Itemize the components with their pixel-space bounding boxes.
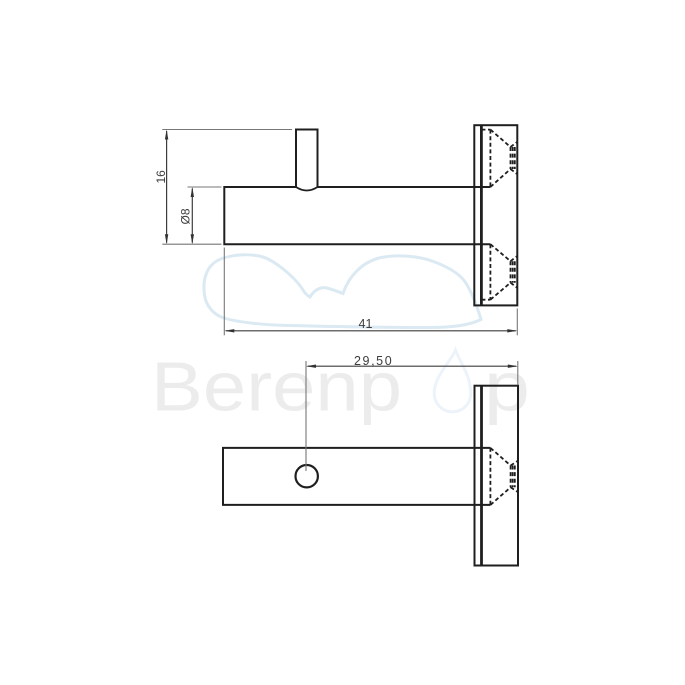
svg-text:41: 41 <box>359 317 373 331</box>
svg-text:29,50: 29,50 <box>354 354 393 368</box>
svg-text:Ø8: Ø8 <box>179 208 193 224</box>
svg-text:16: 16 <box>154 170 168 184</box>
